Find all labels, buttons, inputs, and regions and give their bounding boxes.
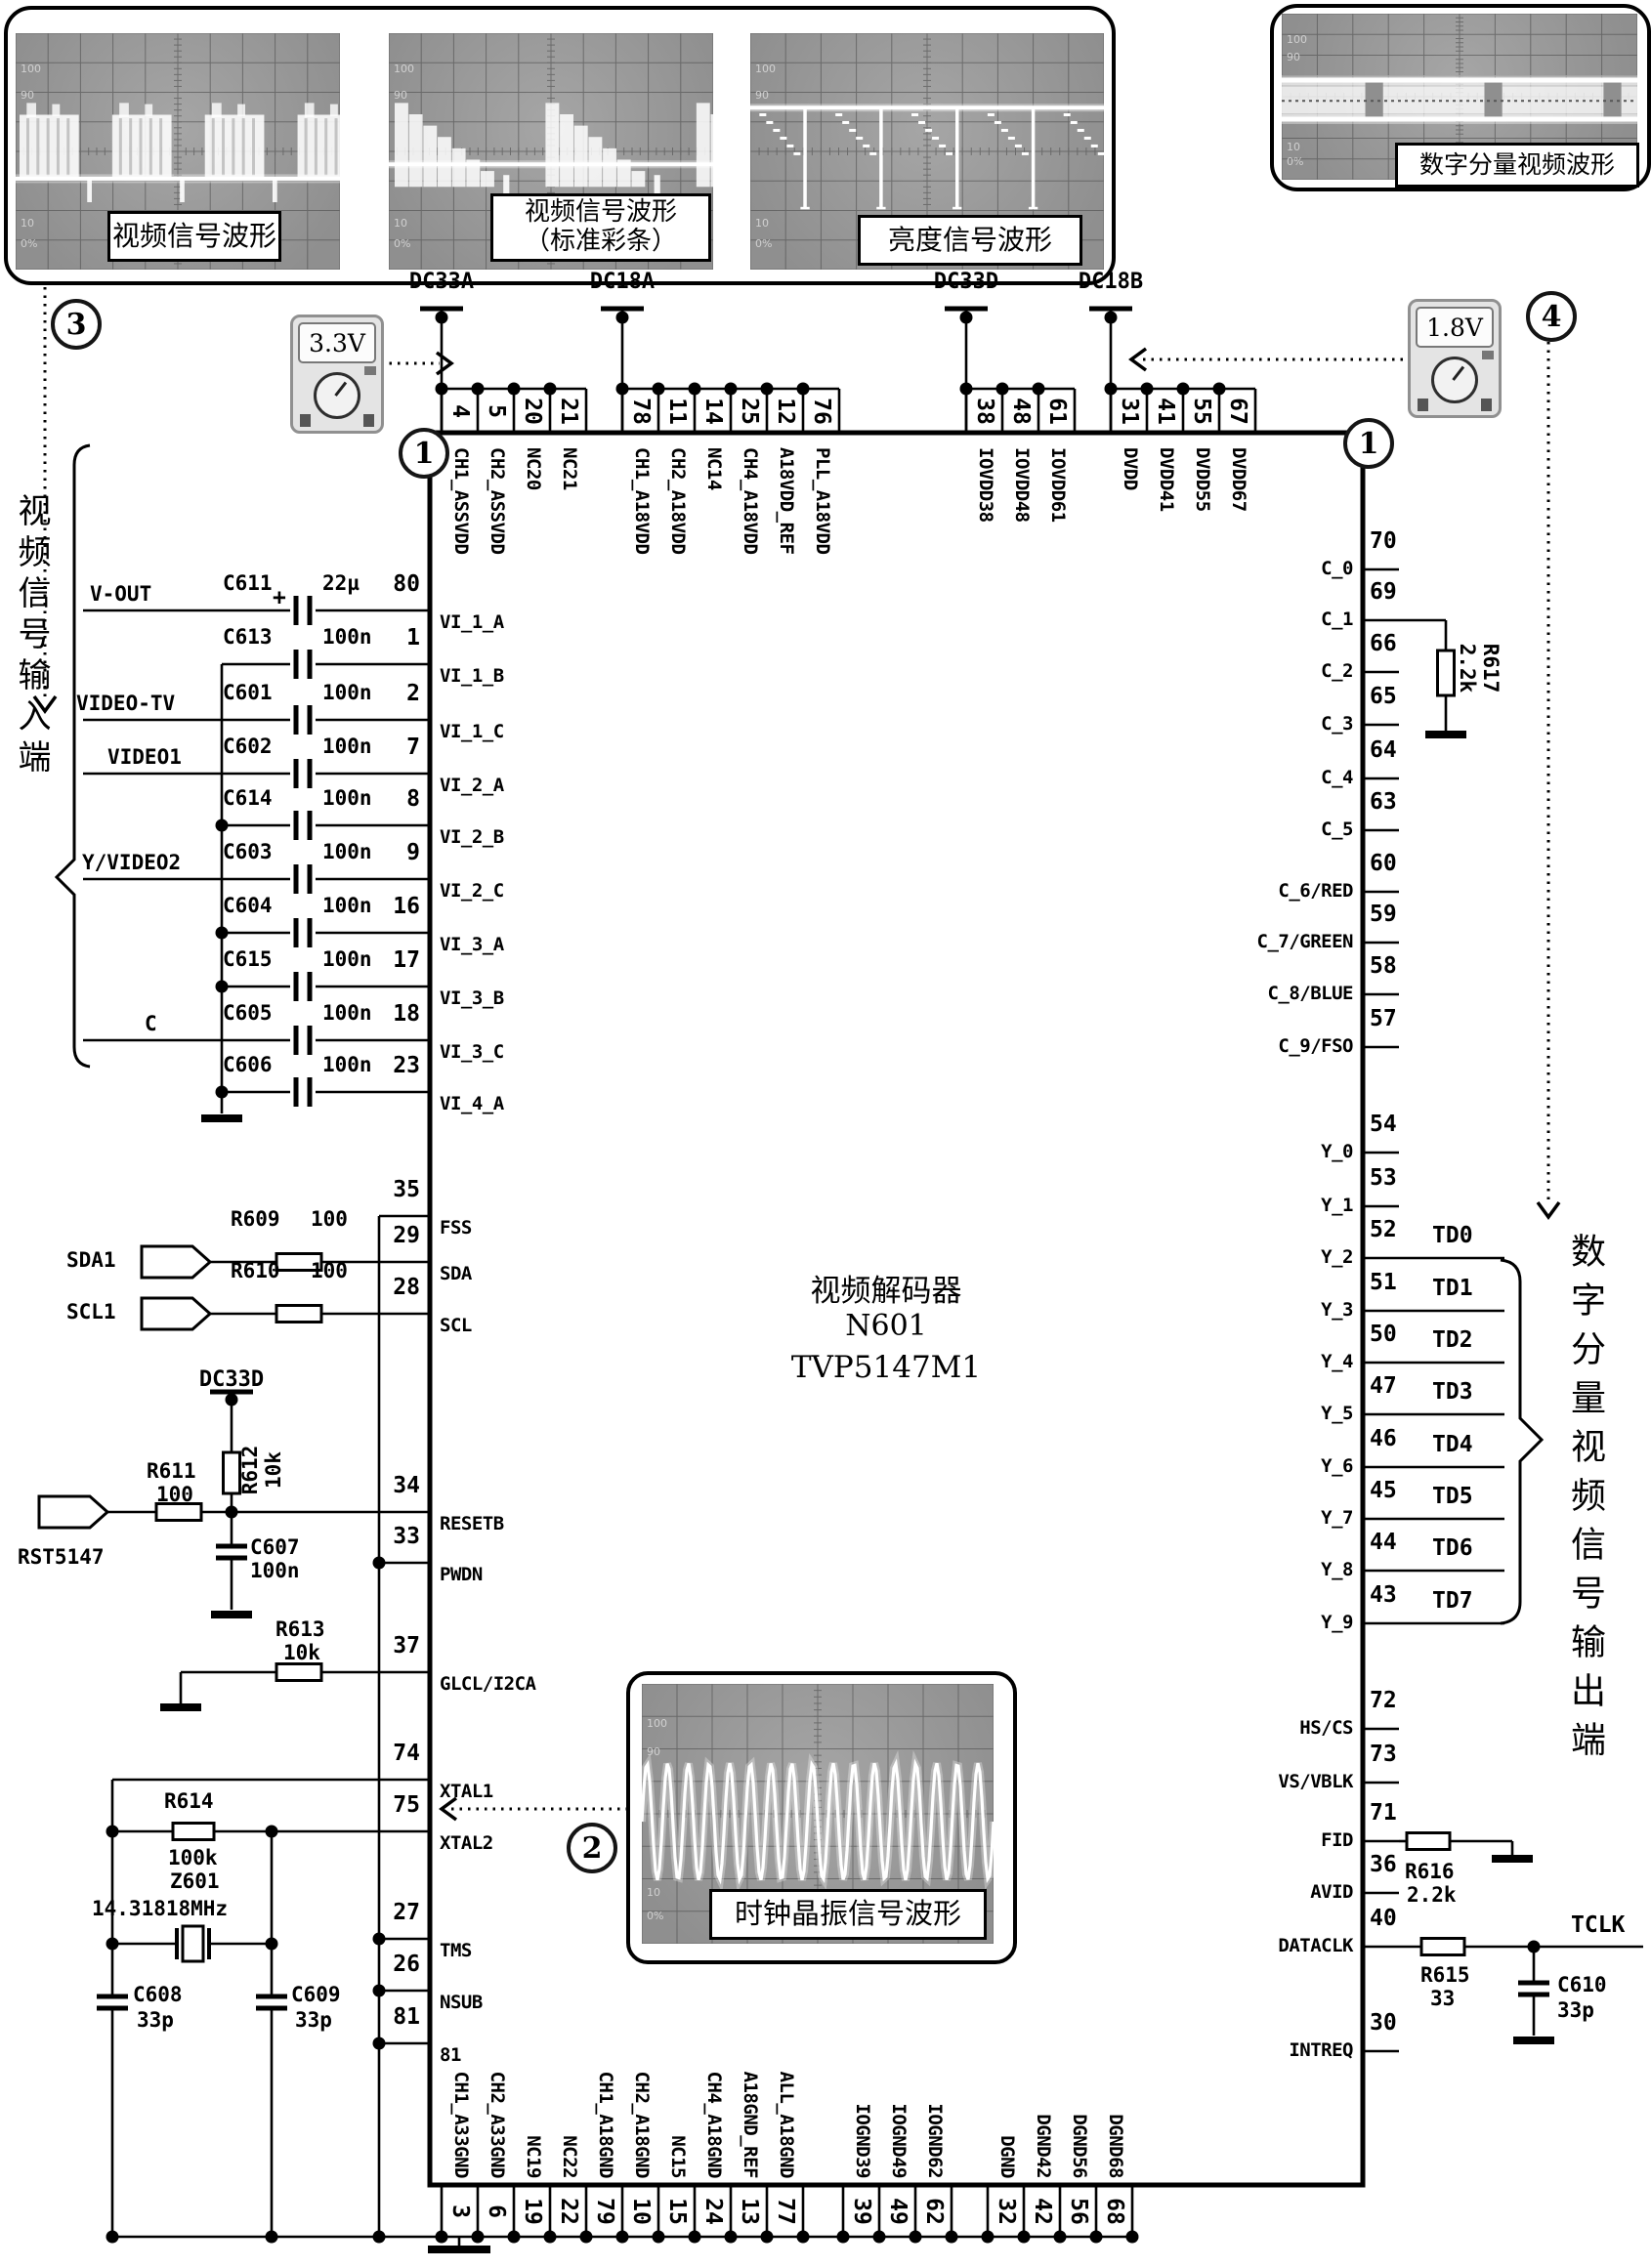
td-net-label: TD3 (1432, 1379, 1473, 1405)
capacitor-ref: C615 (223, 947, 273, 971)
resistor-value: 10k (283, 1641, 320, 1664)
left-pin-number: 33 (342, 1524, 420, 1549)
capacitor-value: 100n (322, 1001, 372, 1025)
graticule-label: 10 (755, 217, 769, 230)
top-pin-number: 21 (556, 390, 581, 433)
resistor-ref: R613 (275, 1617, 325, 1641)
capacitor-ref: C614 (223, 786, 273, 810)
right-pin-number: 36 (1370, 1852, 1397, 1877)
top-pin-name: CH1_ASSVDD (450, 447, 472, 633)
schematic-page: 10090100% 10090100% 10090100% 10090100% … (0, 0, 1651, 2268)
left-pin-name: VI_2_A (440, 775, 504, 796)
left-pin-name: VI_3_B (440, 987, 504, 1009)
connector-label-rst5147: RST5147 (18, 1545, 105, 1569)
capacitor-ref: C606 (223, 1053, 273, 1076)
left-pin-name: VI_4_A (440, 1093, 504, 1114)
multimeter-display: 1.8V (1416, 307, 1494, 348)
resistor-value: 100 (156, 1483, 193, 1506)
right-pin-number: 66 (1370, 631, 1397, 656)
bottom-pin-name: CH4_A18GND (703, 1991, 725, 2178)
left-pin-number: 81 (342, 2004, 420, 2030)
bottom-pin-number: 79 (592, 2189, 617, 2234)
left-pin-name: TMS (440, 1940, 472, 1961)
graticule-label: 100 (21, 63, 41, 75)
bottom-pin-name: NC15 (667, 1991, 689, 2178)
connector-label-scl1: SCL1 (66, 1300, 116, 1323)
capacitor-ref: C607 (250, 1535, 300, 1559)
top-pin-name: DVDD67 (1228, 447, 1249, 633)
td-net-label: TD5 (1432, 1484, 1473, 1509)
bottom-pin-number: 6 (484, 2189, 509, 2234)
bottom-pin-number: 68 (1102, 2189, 1127, 2234)
capacitor-ref: C602 (223, 735, 273, 758)
bottom-pin-number: 32 (994, 2189, 1019, 2234)
resistor-label-rotated: R617 2.2k (1456, 623, 1503, 713)
graticule-label: 0% (21, 237, 37, 250)
capacitor-value: 100n (250, 1559, 300, 1582)
right-pin-number: 50 (1370, 1322, 1397, 1347)
left-pin-name: GLCL/I2CA (440, 1673, 535, 1695)
right-pin-name: Y_3 (1197, 1299, 1353, 1321)
top-pin-number: 12 (773, 390, 798, 433)
left-pin-name: VI_2_B (440, 826, 504, 848)
scope-label-clock: 时钟晶振信号波形 (709, 1889, 987, 1940)
capacitor-ref: C605 (223, 1001, 273, 1025)
right-pin-number: 60 (1370, 851, 1397, 876)
scope-waveform (1282, 80, 1637, 119)
rail-dc33d-reset: DC33D (187, 1367, 276, 1392)
bottom-pin-number: 42 (1030, 2189, 1055, 2234)
right-pin-number: 44 (1370, 1530, 1397, 1555)
scope-label-colorbar: 视频信号波形 （标准彩条） (490, 193, 711, 262)
meter-jack-icon (1481, 399, 1492, 411)
top-pin-name: DVDD (1120, 447, 1141, 633)
bottom-pin-name: DGND42 (1033, 1991, 1054, 2178)
top-pin-number: 4 (447, 390, 473, 433)
bottom-pin-number: 56 (1066, 2189, 1091, 2234)
graticule-label: 90 (394, 89, 407, 102)
graticule-label: 100 (647, 1717, 667, 1730)
right-pin-number: 69 (1370, 579, 1397, 605)
capacitor-value: 100n (322, 840, 372, 863)
bottom-pin-name: IOGND49 (888, 1991, 910, 2178)
top-pin-name: NC21 (559, 447, 580, 633)
top-pin-number: 14 (700, 390, 726, 433)
scope-label-text: 时钟晶振信号波形 (735, 1898, 961, 1930)
right-pin-name: Y_7 (1197, 1507, 1353, 1529)
right-pin-name: Y_8 (1197, 1559, 1353, 1580)
multimeter-1v8: 1.8V (1408, 299, 1502, 418)
multimeter-3v3: 3.3V (290, 315, 384, 434)
left-pin-name: SDA (440, 1263, 472, 1284)
left-pin-name: FSS (440, 1217, 472, 1239)
resistor-value: 33 (1430, 1987, 1455, 2010)
td-net-label: TD2 (1432, 1327, 1473, 1353)
scope-label-text: 亮度信号波形 (888, 225, 1052, 256)
top-pin-name: NC20 (523, 447, 544, 633)
right-pin-name: C_2 (1197, 660, 1353, 682)
capacitor-value: 33p (1557, 1998, 1594, 2022)
top-pin-name: CH4_A18VDD (740, 447, 761, 633)
right-pin-number: 47 (1370, 1373, 1397, 1399)
input-net-label: VIDEO-TV (76, 692, 175, 715)
right-pin-name: INTREQ (1197, 2039, 1353, 2061)
right-pin-number: 64 (1370, 737, 1397, 763)
top-pin-name: DVDD41 (1156, 447, 1177, 633)
chip-title: 视频解码器 (764, 1266, 1008, 1310)
bottom-pin-name: DGND56 (1069, 1991, 1090, 2178)
capacitor-value: 33p (137, 2008, 174, 2032)
left-pin-name: NSUB (440, 1992, 483, 2013)
top-pin-number: 31 (1117, 390, 1142, 433)
bottom-pin-name: IOGND39 (852, 1991, 873, 2178)
capacitor-ref: C601 (223, 681, 273, 704)
top-pin-number: 25 (737, 390, 762, 433)
right-pin-name: Y_0 (1197, 1141, 1353, 1162)
bottom-pin-number: 3 (447, 2189, 473, 2234)
right-pin-number: 59 (1370, 902, 1397, 927)
top-pin-number: 55 (1189, 390, 1214, 433)
bottom-pin-name: CH2_A18GND (631, 1991, 653, 2178)
resistor-ref: R610 (231, 1259, 280, 1282)
top-pin-name: IOVDD48 (1011, 447, 1033, 633)
graticule-label: 90 (1287, 51, 1300, 63)
callout-arrow-icon (437, 353, 451, 374)
input-net-label: C (145, 1012, 157, 1035)
scope-waveform (642, 1763, 994, 1880)
rail-dc18a: DC18A (577, 270, 667, 294)
digital-output-label: 数字分量视频信号输出端 (1559, 1233, 1610, 1794)
callout-arrow-icon (1538, 1202, 1559, 1217)
video-input-label: 视频信号输入端 (8, 493, 56, 786)
bottom-pin-number: 15 (664, 2189, 690, 2234)
connector-label-sda1: SDA1 (66, 1248, 116, 1272)
top-pin-name: IOVDD61 (1047, 447, 1069, 633)
top-pin-number: 67 (1225, 390, 1250, 433)
left-pin-number: 26 (342, 1952, 420, 1977)
capacitor-value: 100n (322, 786, 372, 810)
left-pin-number: 74 (342, 1741, 420, 1766)
left-pin-name: RESETB (440, 1513, 504, 1534)
td-net-label: TD0 (1432, 1223, 1473, 1248)
top-pin-name: A18VDD_REF (776, 447, 797, 633)
bottom-pin-number: 24 (700, 2189, 726, 2234)
scope-label-digital: 数字分量视频波形 (1395, 143, 1639, 188)
capacitor-value: 33p (295, 2008, 332, 2032)
scope-label-text: 数字分量视频波形 (1419, 151, 1615, 180)
multimeter-dial-icon (314, 372, 360, 419)
resistor-ref: R609 (231, 1207, 280, 1231)
capacitor-value: 100n (322, 735, 372, 758)
right-pin-name: DATACLK (1197, 1935, 1353, 1956)
graticule-label: 10 (647, 1886, 660, 1899)
capacitor-value: 100n (322, 947, 372, 971)
top-pin-name: IOVDD38 (975, 447, 996, 633)
bottom-pin-name: CH1_A18GND (595, 1991, 616, 2178)
right-pin-name: C_7/GREEN (1197, 931, 1353, 952)
top-pin-number: 61 (1044, 390, 1070, 433)
bottom-pin-number: 19 (520, 2189, 545, 2234)
graticule-label: 100 (394, 63, 414, 75)
right-pin-name: C_6/RED (1197, 880, 1353, 902)
left-pin-name: XTAL2 (440, 1832, 493, 1854)
input-net-label: V-OUT (90, 582, 151, 606)
scope-label-text2: （标准彩条） (525, 228, 677, 257)
left-pin-number: 75 (342, 1792, 420, 1818)
left-pin-number: 29 (342, 1223, 420, 1248)
input-net-label: VIDEO1 (107, 745, 182, 769)
bottom-pin-name: NC19 (523, 1991, 544, 2178)
right-pin-number: 46 (1370, 1426, 1397, 1451)
bottom-pin-number: 49 (885, 2189, 910, 2234)
graticule-label: 10 (1287, 141, 1300, 153)
top-pin-number: 41 (1153, 390, 1178, 433)
left-pin-name: XTAL1 (440, 1781, 493, 1802)
td-net-label: TD4 (1432, 1432, 1473, 1457)
bottom-pin-number: 13 (737, 2189, 762, 2234)
bottom-pin-name: A18GND_REF (740, 1991, 761, 2178)
left-pin-name: VI_3_A (440, 934, 504, 955)
right-pin-number: 43 (1370, 1582, 1397, 1608)
resistor-value: 2.2k (1456, 623, 1479, 713)
bottom-pin-name: ALL_A18GND (776, 1991, 797, 2178)
top-pin-number: 76 (809, 390, 834, 433)
bottom-pin-number: 22 (556, 2189, 581, 2234)
resistor-value: 100k (168, 1846, 218, 1869)
capacitor-ref: C603 (223, 840, 273, 863)
right-pin-name: C_3 (1197, 713, 1353, 735)
meter-jack-icon (300, 414, 311, 427)
crystal-value: 14.31818MHz (92, 1897, 228, 1920)
right-pin-name: VS/VBLK (1197, 1771, 1353, 1792)
graticule-label: 90 (647, 1745, 660, 1758)
right-pin-number: 73 (1370, 1742, 1397, 1767)
bottom-pin-name: NC22 (559, 1991, 580, 2178)
capacitor-value: 22µ (322, 571, 360, 595)
td-net-label: TD6 (1432, 1535, 1473, 1561)
scope-label-luma: 亮度信号波形 (858, 215, 1082, 266)
multimeter-display: 3.3V (298, 322, 376, 363)
right-pin-name: Y_4 (1197, 1351, 1353, 1372)
multimeter-dial-icon (1431, 357, 1478, 403)
right-pin-number: 45 (1370, 1478, 1397, 1503)
right-pin-name: C_5 (1197, 819, 1353, 840)
input-net-label: Y/VIDEO2 (82, 851, 181, 874)
graticule-label: 0% (755, 237, 772, 250)
resistor-ref: R612 (238, 1421, 262, 1519)
capacitor-value: 100n (322, 1053, 372, 1076)
top-pin-name: CH2_A18VDD (667, 447, 689, 633)
top-pin-number: 11 (664, 390, 690, 433)
right-pin-number: 70 (1370, 528, 1397, 554)
graticule-label: 90 (755, 89, 769, 102)
right-pin-name: C_1 (1197, 609, 1353, 630)
graticule-label: 100 (1287, 33, 1307, 46)
crystal-ref: Z601 (170, 1869, 220, 1893)
left-pin-number: 37 (342, 1633, 420, 1659)
capacitor-value: 100n (322, 625, 372, 649)
capacitor-ref: C611 (223, 571, 273, 595)
graticule-label: 10 (394, 217, 407, 230)
callout-2: 2 (567, 1823, 617, 1873)
polarity-plus: + (273, 585, 286, 610)
right-pin-name: AVID (1197, 1881, 1353, 1903)
left-pin-name: VI_2_C (440, 880, 504, 902)
right-pin-name: C_9/FSO (1197, 1035, 1353, 1057)
td-net-label: TD1 (1432, 1276, 1473, 1301)
resistor-ref: R611 (147, 1459, 196, 1483)
resistor-ref: R614 (164, 1789, 214, 1813)
left-pin-name: VI_1_B (440, 665, 504, 687)
capacitor-value: 100n (322, 681, 372, 704)
top-pin-name: CH1_A18VDD (631, 447, 653, 633)
right-pin-name: Y_9 (1197, 1612, 1353, 1633)
top-pin-number: 78 (628, 390, 654, 433)
resistor-value: 10k (262, 1421, 285, 1519)
resistor-label-rotated: R612 10k (238, 1421, 285, 1519)
right-pin-number: 30 (1370, 2010, 1397, 2036)
meter-jack-icon (363, 414, 374, 427)
scope-label-text: 视频信号波形 (112, 221, 276, 252)
scope-label-text: 视频信号波形 (525, 198, 677, 228)
right-pin-number: 65 (1370, 684, 1397, 709)
graticule-label: 0% (1287, 155, 1303, 168)
graticule-label: 100 (755, 63, 776, 75)
left-pin-number: 35 (342, 1177, 420, 1202)
left-pin-number: 28 (342, 1275, 420, 1300)
bottom-pin-name: IOGND62 (924, 1991, 946, 2178)
right-pin-number: 40 (1370, 1906, 1397, 1931)
right-pin-name: Y_5 (1197, 1403, 1353, 1424)
chip-designator: N601 (764, 1309, 1008, 1343)
right-pin-name: HS/CS (1197, 1717, 1353, 1739)
top-pin-number: 20 (520, 390, 545, 433)
callout-1-right: 1 (1343, 418, 1394, 469)
scope-label-video-signal: 视频信号波形 (107, 211, 281, 262)
bottom-pin-number: 77 (773, 2189, 798, 2234)
top-pin-name: DVDD55 (1192, 447, 1213, 633)
callout-1-left: 1 (399, 428, 449, 479)
right-pin-number: 53 (1370, 1165, 1397, 1191)
resistor-value: 2.2k (1407, 1883, 1457, 1907)
right-pin-number: 58 (1370, 953, 1397, 979)
rail-dc18b: DC18B (1066, 270, 1156, 294)
digital-output-brace (1501, 1260, 1542, 1623)
right-pin-name: C_0 (1197, 558, 1353, 579)
chip-part-number: TVP5147M1 (764, 1350, 1008, 1385)
left-pin-name: VI_3_C (440, 1041, 504, 1063)
left-pin-name: SCL (440, 1315, 472, 1336)
right-pin-number: 52 (1370, 1217, 1397, 1242)
right-pin-name: C_8/BLUE (1197, 983, 1353, 1004)
top-pin-name: NC14 (703, 447, 725, 633)
right-pin-number: 57 (1370, 1006, 1397, 1031)
capacitor-ref: C613 (223, 625, 273, 649)
callout-4: 4 (1526, 291, 1577, 342)
right-pin-name: Y_2 (1197, 1246, 1353, 1268)
left-pin-number: 34 (342, 1473, 420, 1498)
bottom-pin-name: DGND (996, 1991, 1018, 2178)
net-label-tclk: TCLK (1571, 1912, 1625, 1938)
right-pin-number: 54 (1370, 1112, 1397, 1137)
capacitor-ref: C610 (1557, 1973, 1607, 1996)
bottom-pin-name: CH2_A33GND (487, 1991, 508, 2178)
top-pin-name: CH2_ASSVDD (487, 447, 508, 633)
capacitor-ref: C604 (223, 894, 273, 917)
right-pin-name: Y_1 (1197, 1195, 1353, 1216)
rail-dc33d: DC33D (921, 270, 1011, 294)
graticule-label: 10 (21, 217, 34, 230)
graticule-label: 90 (21, 89, 34, 102)
bottom-pin-number: 10 (628, 2189, 654, 2234)
capacitor-ref: C609 (291, 1983, 341, 2006)
resistor-ref: R617 (1479, 623, 1503, 713)
resistor-ref: R616 (1405, 1860, 1455, 1883)
resistor-ref: R615 (1420, 1963, 1470, 1987)
right-pin-number: 71 (1370, 1800, 1397, 1826)
graticule-label: 0% (394, 237, 410, 250)
top-pin-number: 48 (1008, 390, 1034, 433)
left-pin-number: 27 (342, 1900, 420, 1925)
meter-button-icon (1482, 351, 1494, 359)
right-pin-number: 72 (1370, 1688, 1397, 1713)
right-pin-name: FID (1197, 1829, 1353, 1851)
meter-jack-icon (1418, 399, 1428, 411)
right-pin-number: 51 (1370, 1270, 1397, 1295)
bottom-pin-number: 62 (921, 2189, 947, 2234)
rail-dc33a: DC33A (397, 270, 487, 294)
td-net-label: TD7 (1432, 1588, 1473, 1614)
graticule-label: 0% (647, 1910, 663, 1922)
left-pin-name: PWDN (440, 1564, 483, 1585)
capacitor-value: 100n (322, 894, 372, 917)
meter-button-icon (364, 366, 376, 375)
bottom-pin-name: DGND68 (1105, 1991, 1126, 2178)
callout-3: 3 (51, 299, 102, 350)
right-pin-name: C_4 (1197, 767, 1353, 788)
bottom-pin-name: CH1_A33GND (450, 1991, 472, 2178)
right-pin-number: 63 (1370, 789, 1397, 815)
top-pin-name: PLL_A18VDD (812, 447, 833, 633)
top-pin-number: 5 (484, 390, 509, 433)
video-input-brace (57, 445, 90, 1067)
top-pin-number: 38 (972, 390, 997, 433)
bottom-pin-number: 39 (849, 2189, 874, 2234)
left-pin-name: VI_1_A (440, 611, 504, 633)
capacitor-ref: C608 (133, 1983, 183, 2006)
left-pin-name: VI_1_C (440, 721, 504, 742)
left-pin-name: 81 (440, 2044, 461, 2066)
right-pin-name: Y_6 (1197, 1455, 1353, 1477)
